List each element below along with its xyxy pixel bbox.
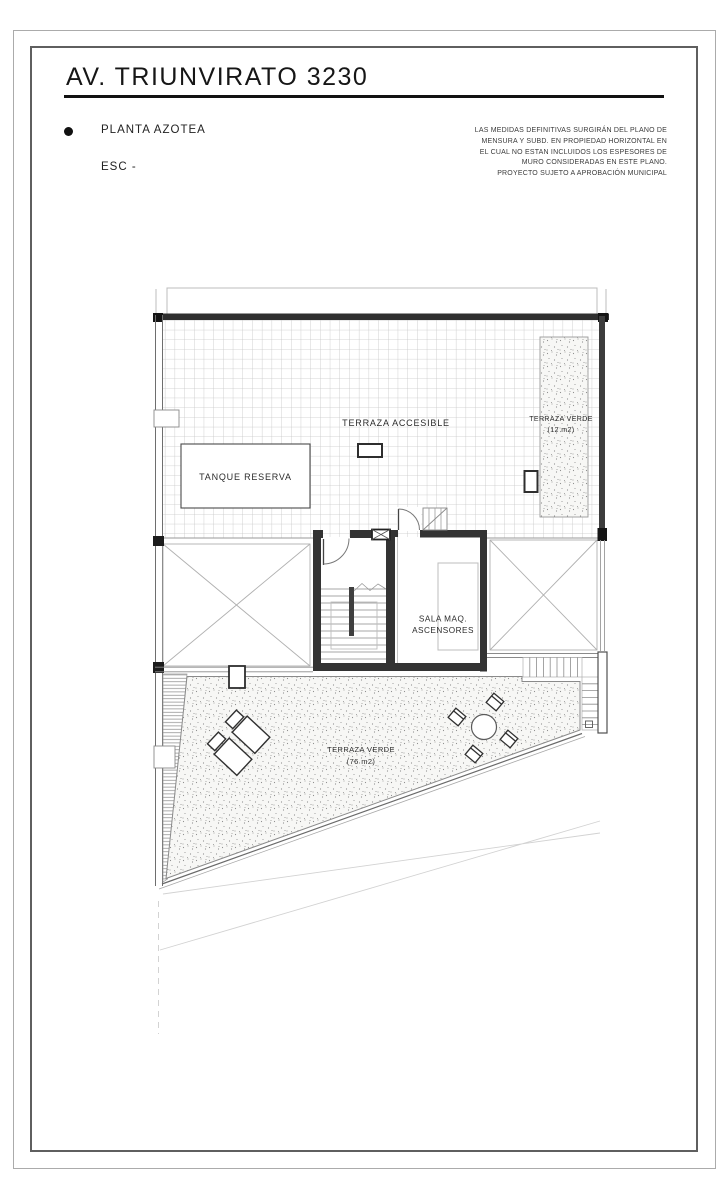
right-pier <box>598 652 607 733</box>
terraza-verde-76-label: TERRAZA VERDE <box>327 745 395 754</box>
top-wall <box>153 314 609 321</box>
roof-plan-drawing: TERRAZA ACCESIBLE TANQUE RESERVA TERRAZA… <box>0 0 728 1200</box>
plan-sheet: AV. TRIUNVIRATO 3230 PLANTA AZOTEA ESC -… <box>0 0 728 1200</box>
sala-maq-label-2: ASCENSORES <box>412 626 474 635</box>
right-wall <box>599 316 605 540</box>
window-icon <box>372 530 390 540</box>
mini-stair <box>423 508 447 530</box>
stair-divider <box>349 587 354 636</box>
sala-maq-label-1: SALA MAQ. <box>419 615 467 624</box>
lower-terrace <box>154 652 607 1034</box>
wall-niche-upper <box>154 410 179 427</box>
x-brace-left <box>163 544 310 666</box>
terraza-verde-76-area: (76 m2) <box>347 757 376 766</box>
vent-box-2 <box>525 471 538 492</box>
vent-box-3 <box>229 666 245 688</box>
tanque-reserva-label: TANQUE RESERVA <box>199 472 292 482</box>
terraza-verde-76-zone <box>166 677 580 879</box>
wall-niche-lower <box>154 746 175 768</box>
round-table <box>472 715 497 740</box>
terraza-verde-12-label: TERRAZA VERDE <box>529 416 593 423</box>
terraza-accesible-label: TERRAZA ACCESIBLE <box>342 418 450 428</box>
left-wall <box>156 315 163 886</box>
parapet-outline <box>156 288 606 316</box>
vent-box-1 <box>358 444 382 457</box>
x-brace-right <box>490 540 605 651</box>
terraza-verde-12-area: (12 m2) <box>548 427 575 434</box>
